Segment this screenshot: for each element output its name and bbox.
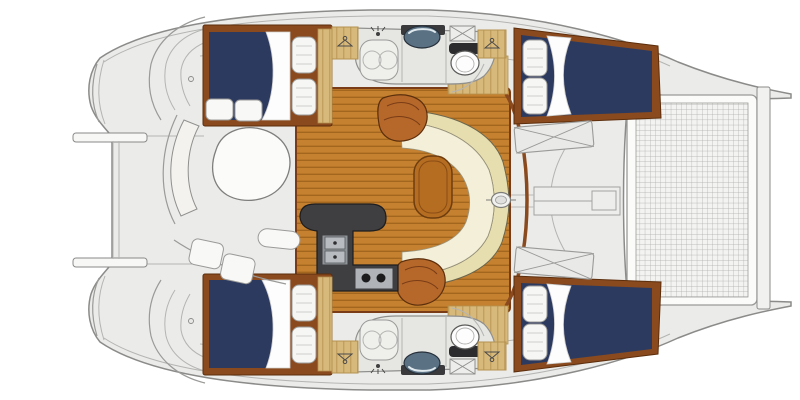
galley-sinks [322,235,348,265]
companionway-steps-port [378,95,427,141]
bed-headboard-shelf [318,29,332,123]
boarding-rail [73,133,147,142]
floor-plan-canvas [0,0,800,400]
hanging-locker-forward [478,30,506,58]
saloon-table [414,156,452,218]
catamaran-floor-plan [0,0,800,400]
shower-stall [360,40,398,80]
galley-stove [355,268,393,289]
cockpit-cushion [235,100,262,121]
cockpit-table [213,128,290,201]
hanging-locker-aft [332,27,358,59]
forward-cabin-bed [514,28,661,124]
toilet [449,43,481,75]
trampoline-net [636,103,748,297]
cockpit-cushion [206,99,233,120]
bow-crossbeam [757,87,770,309]
companionway-steps-starboard [396,259,445,305]
overhead-hatch [450,26,475,41]
